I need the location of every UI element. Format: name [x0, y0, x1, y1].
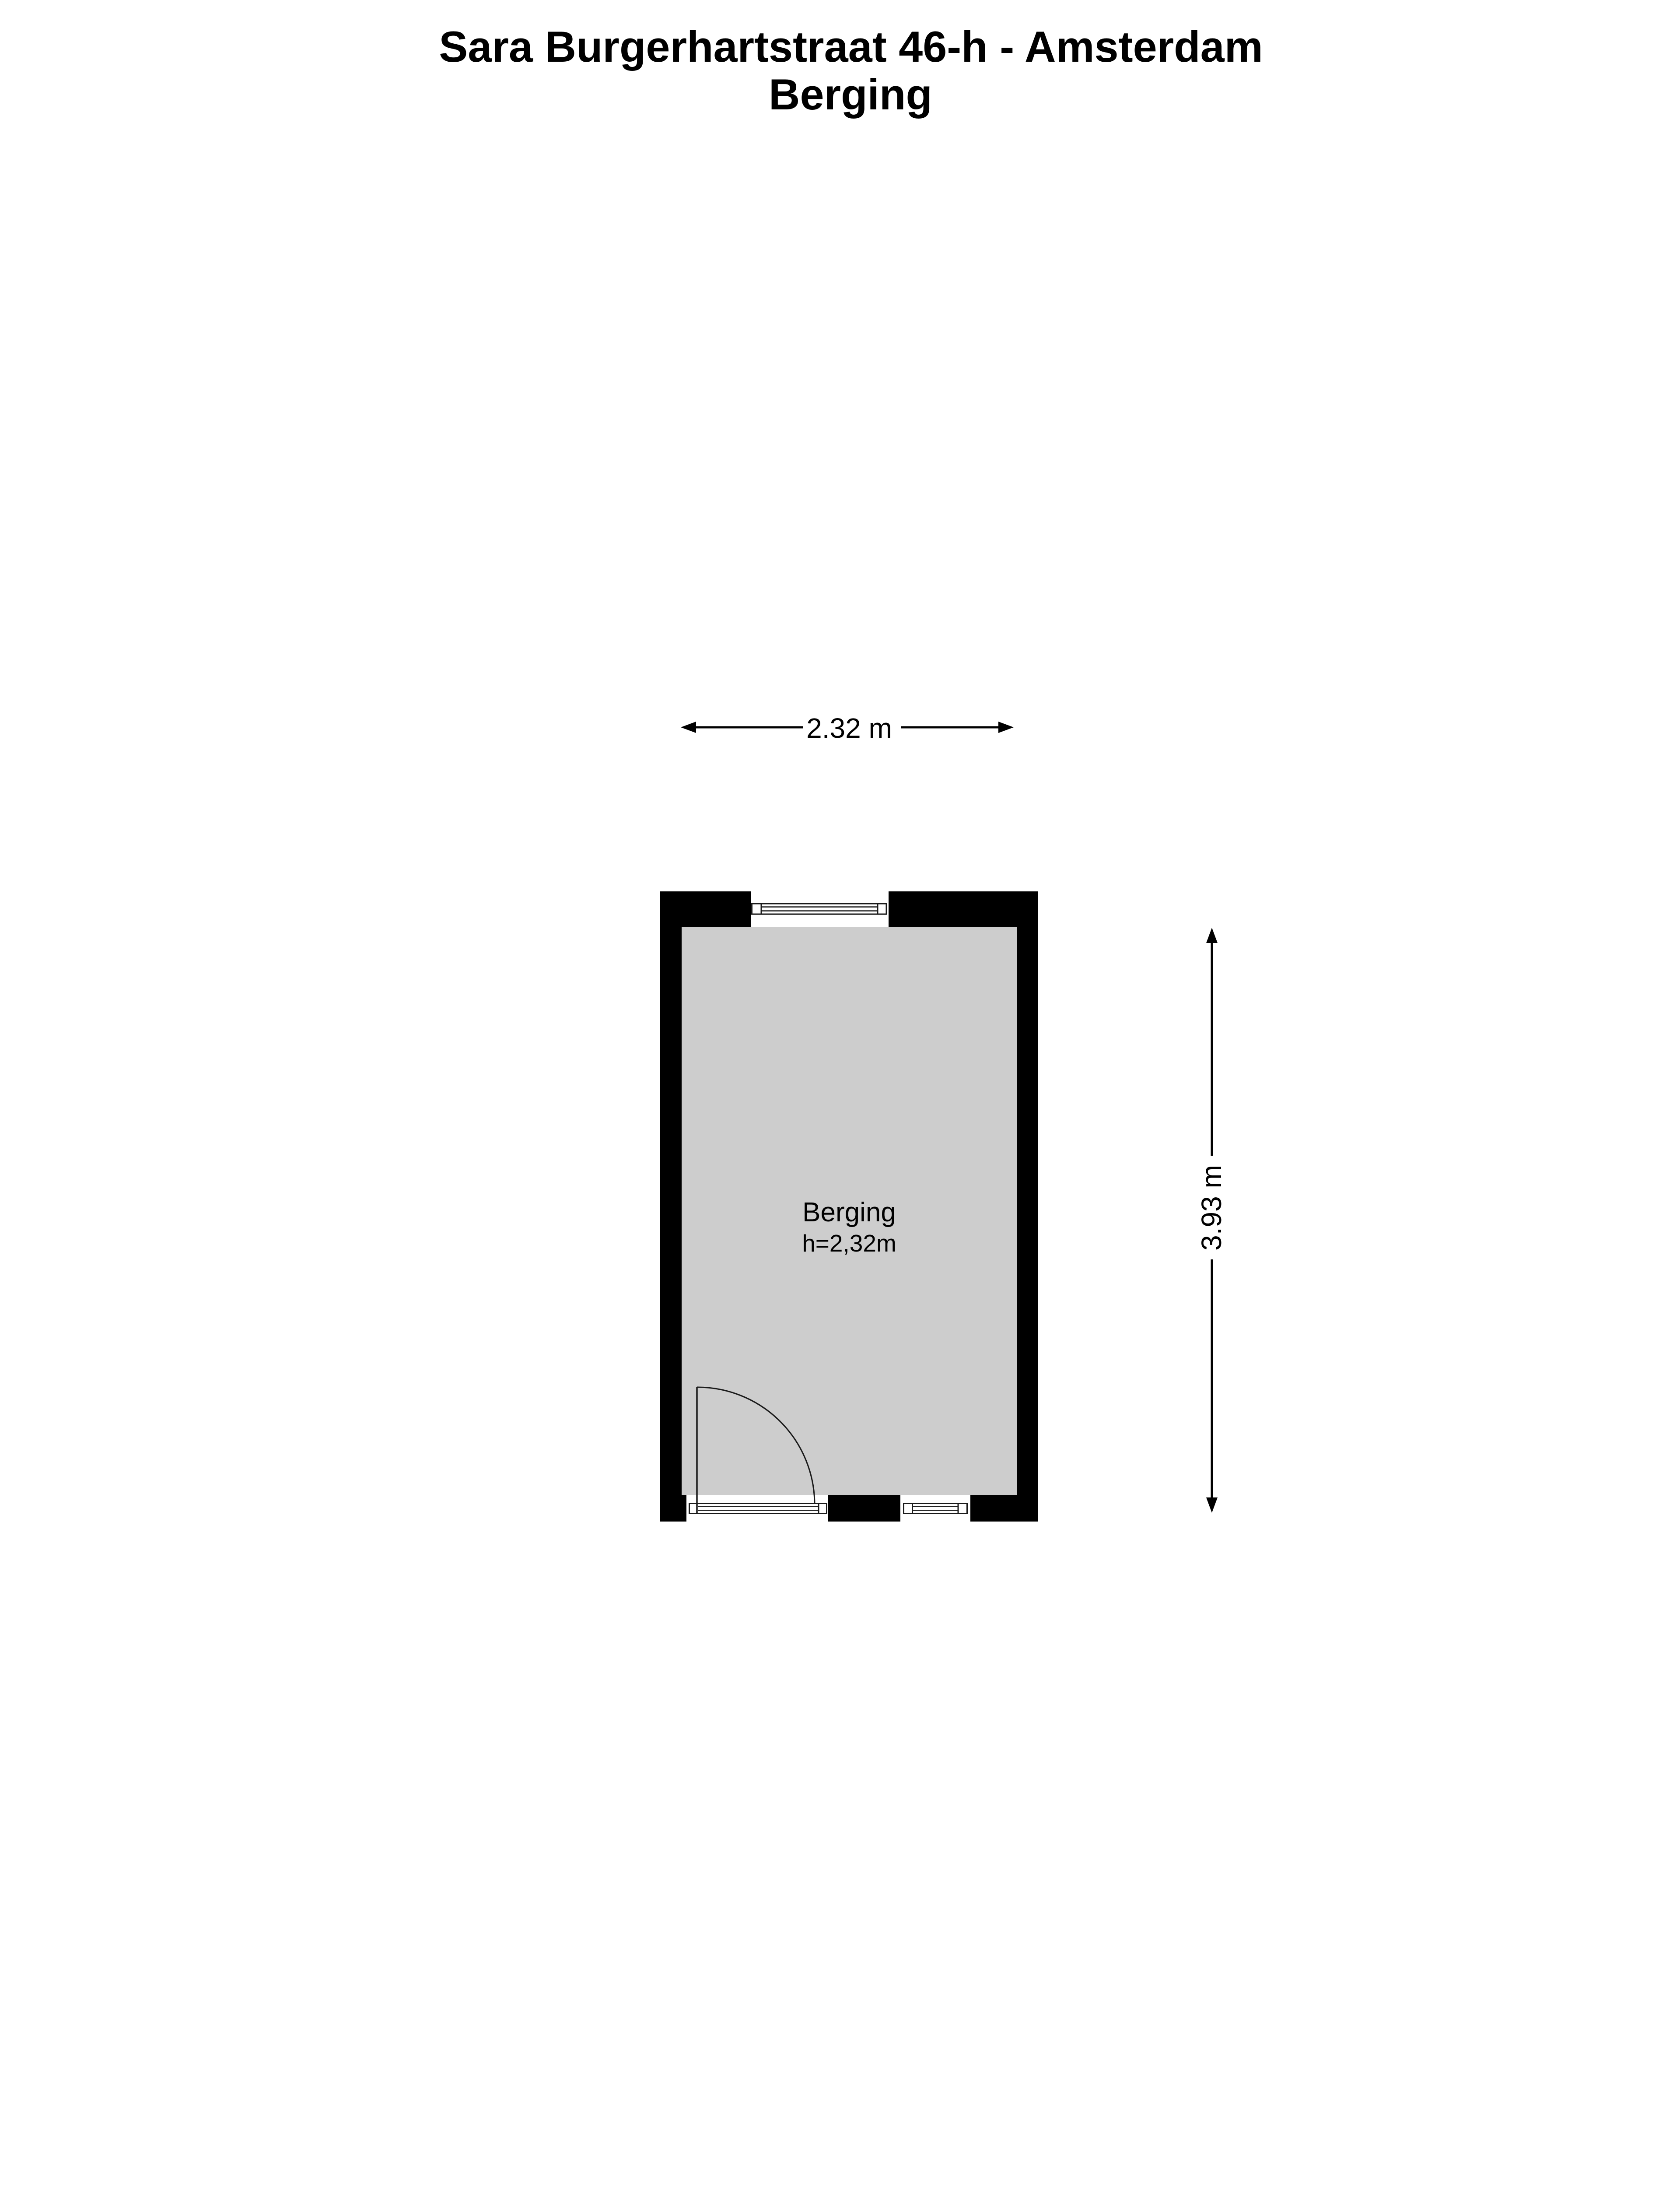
svg-text:2.32 m: 2.32 m	[806, 712, 892, 744]
svg-text:h=2,32m: h=2,32m	[802, 1230, 896, 1257]
svg-text:Sara Burgerhartstraat 46-h - A: Sara Burgerhartstraat 46-h - Amsterdam	[439, 22, 1263, 71]
svg-text:Berging: Berging	[769, 70, 932, 119]
svg-text:Berging: Berging	[802, 1197, 896, 1227]
svg-text:3.93 m: 3.93 m	[1196, 1165, 1227, 1251]
